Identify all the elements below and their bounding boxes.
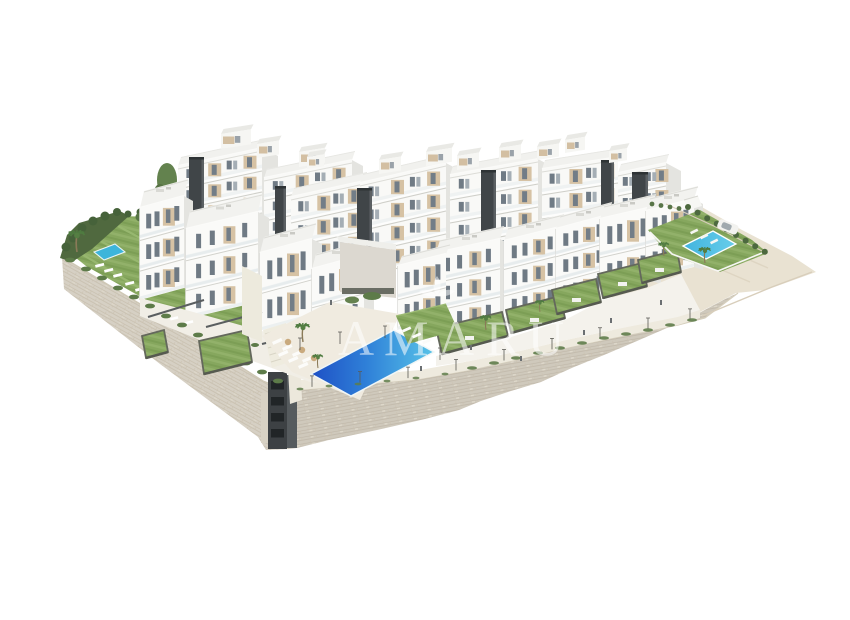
svg-text:U: U [528, 310, 564, 366]
svg-text:M: M [384, 310, 428, 366]
svg-text:A: A [338, 310, 374, 366]
svg-text:R: R [486, 310, 520, 366]
svg-text:A: A [438, 310, 474, 366]
